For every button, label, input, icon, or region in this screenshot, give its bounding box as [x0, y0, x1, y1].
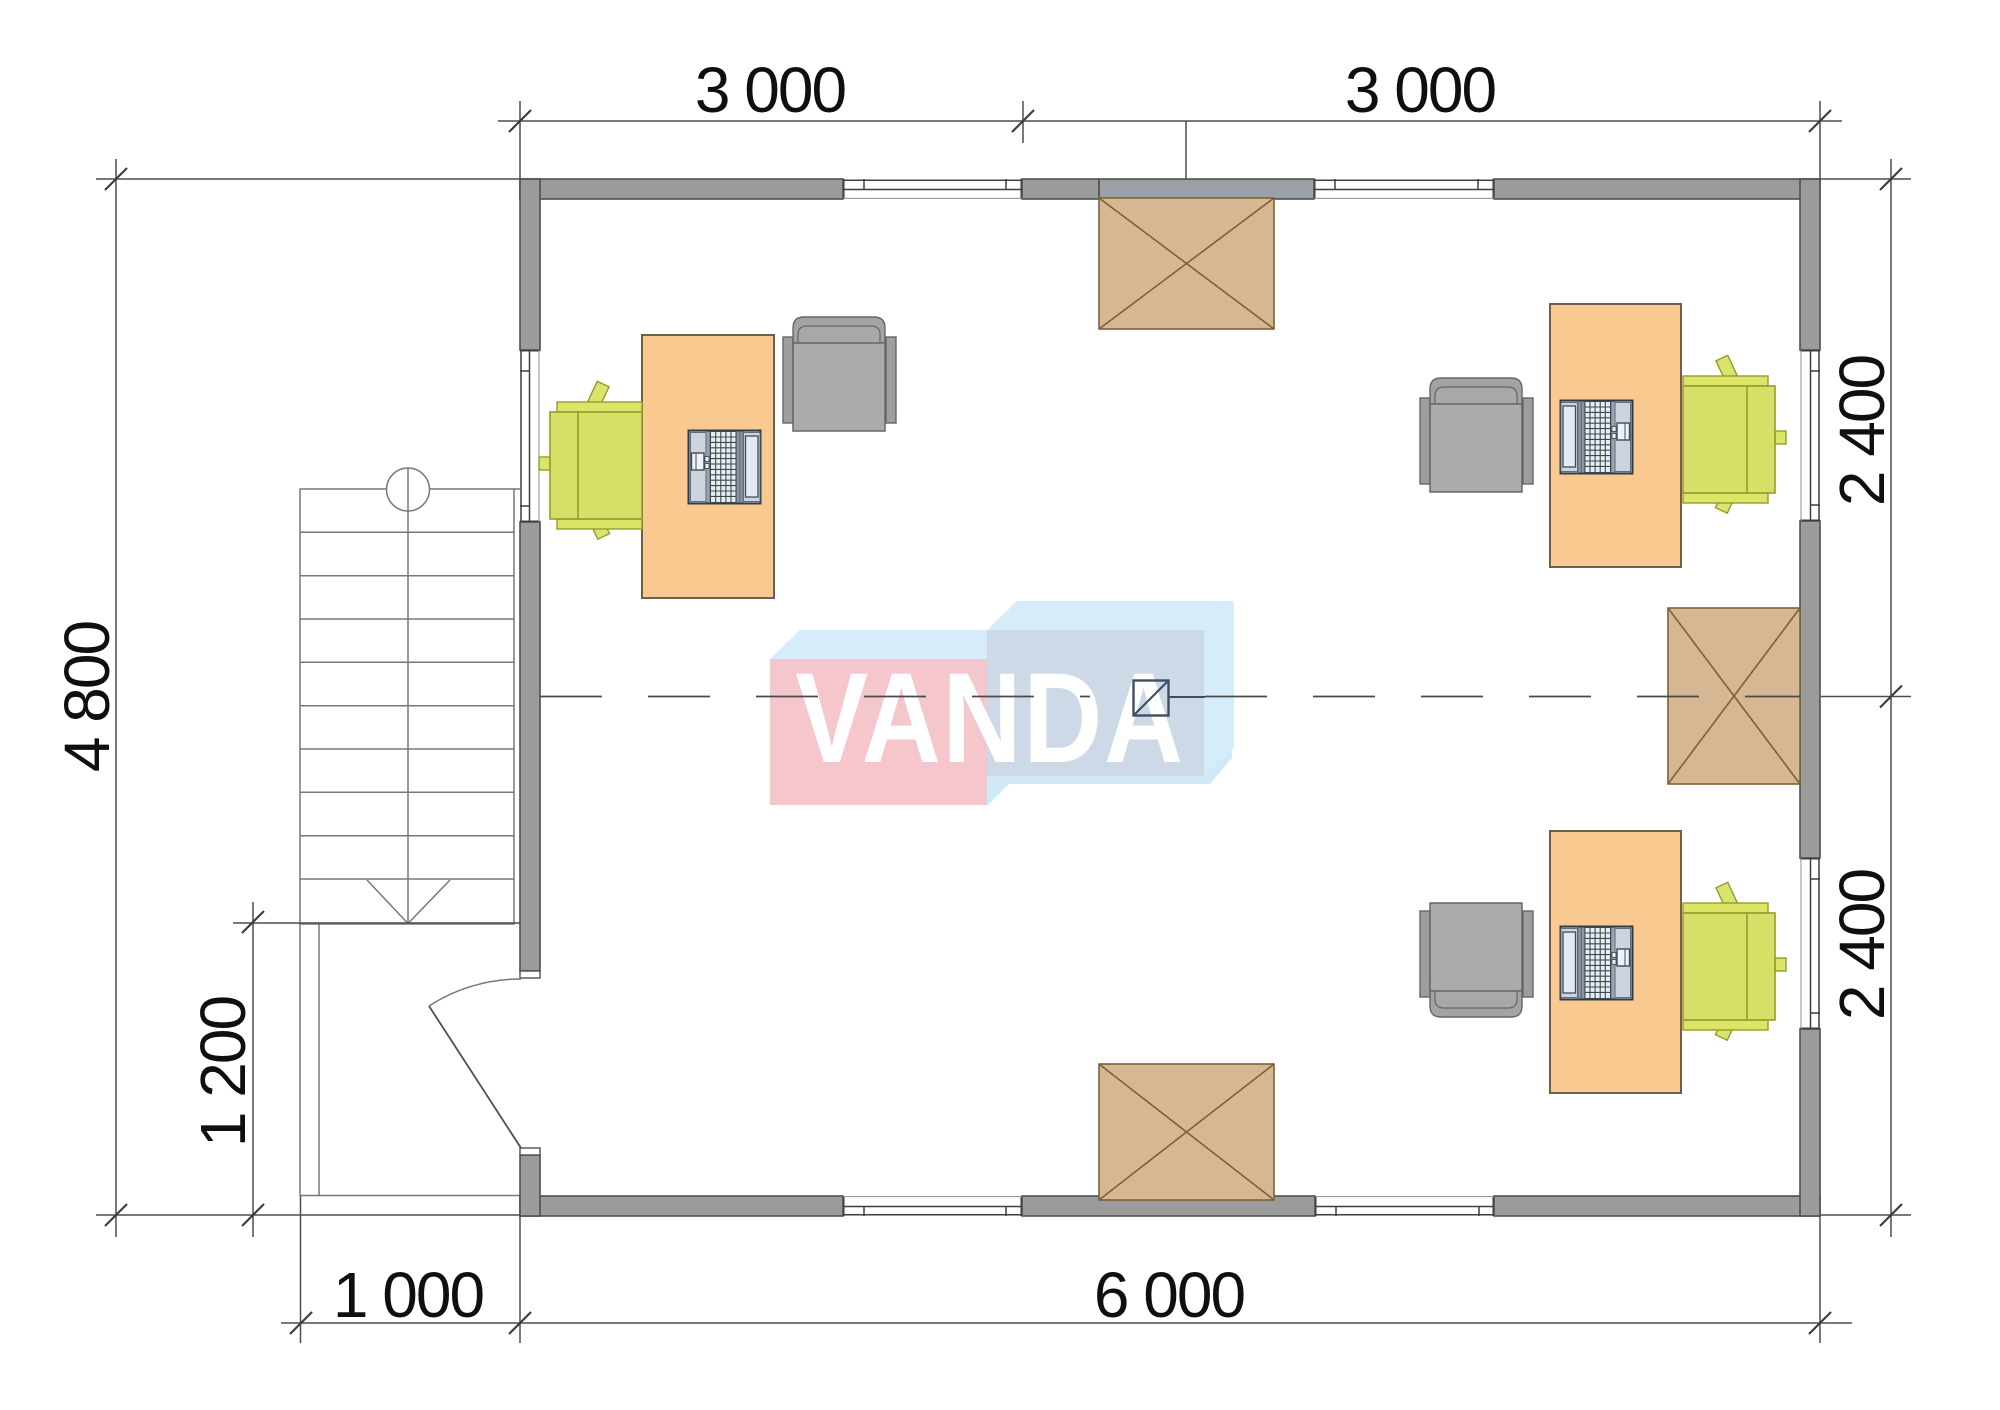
svg-text:1 000: 1 000	[333, 1259, 484, 1331]
svg-text:2 400: 2 400	[1826, 356, 1898, 507]
svg-text:VANDA: VANDA	[795, 647, 1185, 790]
svg-text:3 000: 3 000	[1345, 54, 1496, 126]
svg-text:2 400: 2 400	[1826, 870, 1898, 1021]
svg-text:4 800: 4 800	[51, 622, 123, 773]
svg-text:1 200: 1 200	[187, 997, 259, 1148]
svg-text:6 000: 6 000	[1094, 1259, 1245, 1331]
svg-text:3 000: 3 000	[695, 54, 846, 126]
